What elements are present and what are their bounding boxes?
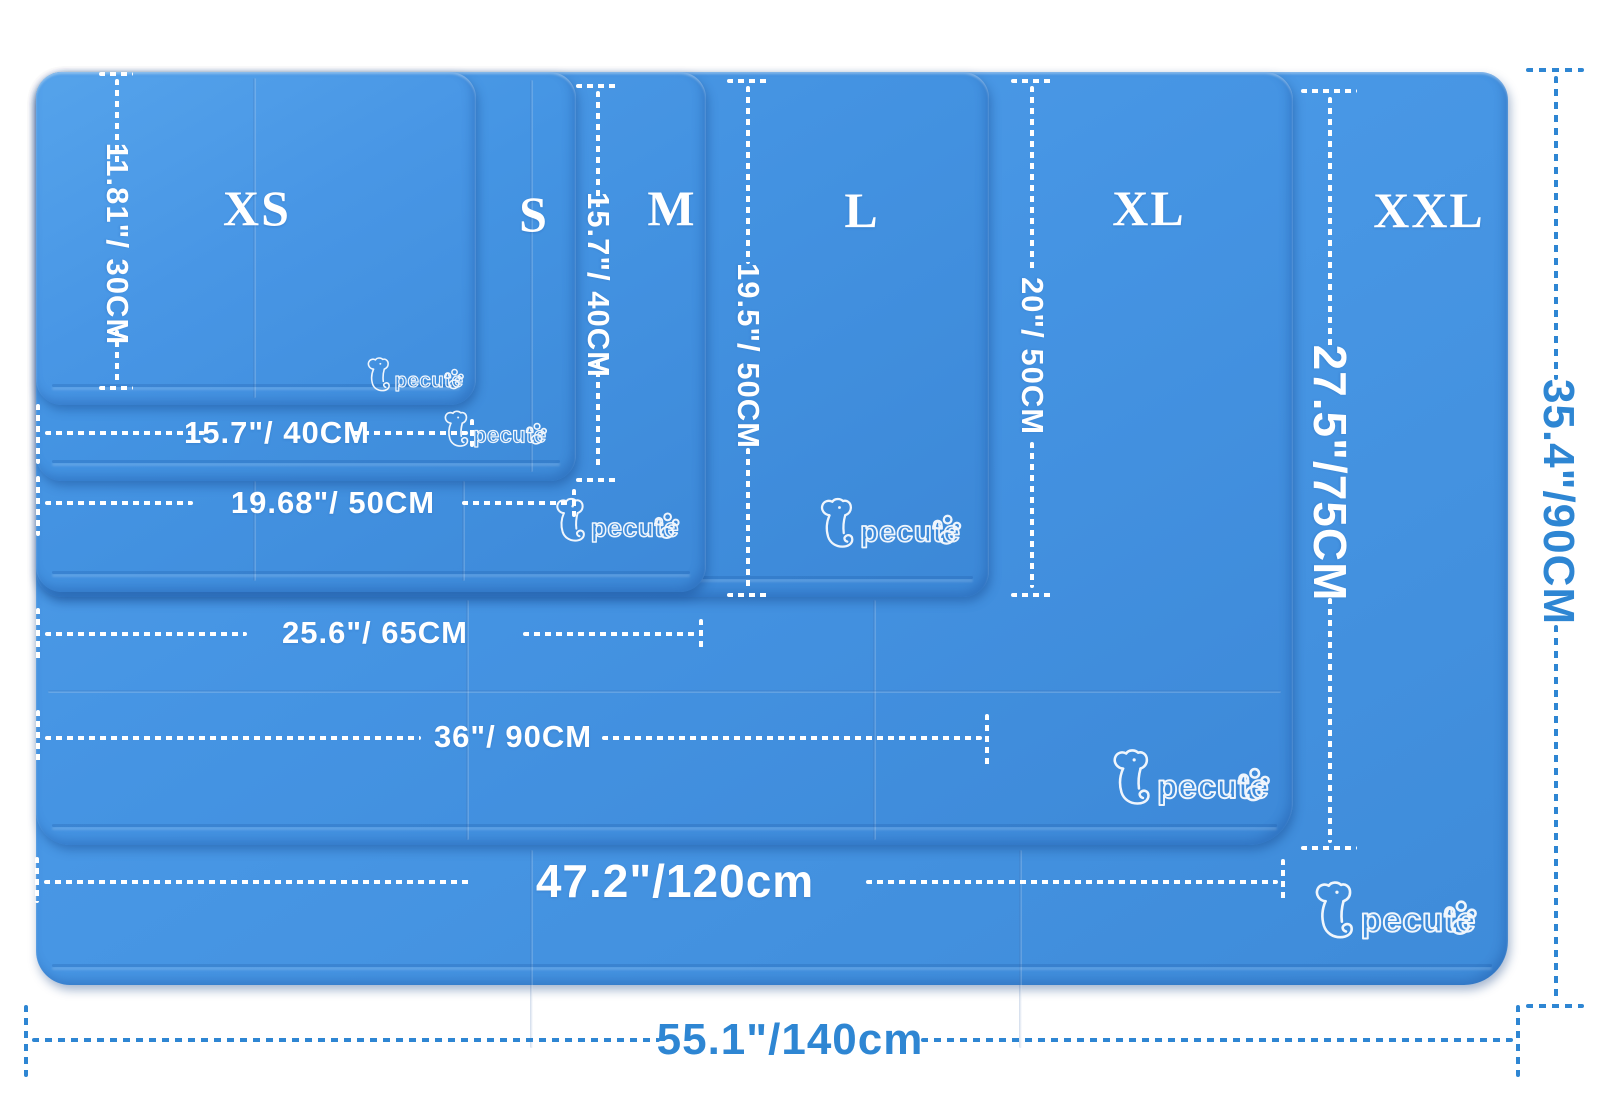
dim-xl-height-line	[1328, 598, 1332, 843]
dim-s-height-top-tick	[576, 84, 618, 88]
mat-panel-crease	[253, 78, 256, 398]
dim-s-width-end-tick	[572, 489, 576, 517]
mat-panel-crease	[462, 481, 465, 581]
dim-xs-width-end-tick	[470, 419, 474, 447]
dim-s-height-text: 15.7"/ 40CM	[580, 192, 616, 378]
dim-xxl-height-text: 35.4"/90CM	[1533, 379, 1583, 625]
pecute-logo-xxl	[1310, 879, 1480, 948]
dim-xs-height-text: 11.81"/ 30CM	[99, 143, 135, 345]
dim-m-height-line	[746, 448, 750, 588]
pecute-logo-xs	[364, 356, 466, 397]
dim-xxl-width-end-cap	[1516, 1005, 1520, 1077]
size-label-xl: XL	[1112, 179, 1185, 237]
dim-l-width-line	[45, 736, 421, 740]
size-label-xs: XS	[223, 179, 291, 237]
dim-xl-width-text: 47.2"/120cm	[536, 854, 814, 908]
dim-s-width-line	[462, 501, 568, 505]
dim-m-width-start-cap	[36, 608, 40, 660]
dim-xs-width-line	[352, 431, 468, 435]
dim-s-height-bottom-tick	[576, 478, 618, 482]
dim-xs-height-top-tick	[99, 72, 133, 76]
dim-s-width-start-cap	[36, 476, 40, 536]
dim-l-height-text: 20"/ 50CM	[1014, 277, 1050, 435]
dim-xxl-width-line	[32, 1038, 660, 1042]
dim-xl-width-line	[44, 880, 470, 884]
size-label-l: L	[844, 181, 879, 239]
mat-panel-crease	[48, 690, 1281, 693]
dim-m-width-end-tick	[699, 619, 703, 648]
dim-xxl-height-line	[1554, 625, 1558, 1001]
dim-xl-width-line	[866, 880, 1278, 884]
dim-xs-width-line	[45, 431, 205, 435]
dim-l-height-bottom-tick	[1011, 593, 1053, 597]
dim-xs-height-line	[115, 330, 119, 383]
dim-xxl-height-bottom-cap	[1526, 1004, 1584, 1008]
dim-m-width-line	[45, 632, 247, 636]
dim-m-height-bottom-tick	[727, 593, 769, 597]
dim-xxl-width-line	[921, 1038, 1513, 1042]
dim-m-width-text: 25.6"/ 65CM	[282, 615, 468, 651]
dim-xl-height-text: 27.5"/75CM	[1303, 345, 1357, 602]
size-label-s: S	[519, 185, 549, 243]
dim-l-width-text: 36"/ 90CM	[434, 719, 592, 755]
pecute-logo-l	[816, 496, 964, 556]
mat-panel-crease	[530, 850, 533, 1048]
dim-l-width-end-tick	[985, 714, 989, 766]
dim-l-width-start-cap	[36, 710, 40, 765]
dim-xs-width-start-cap	[36, 404, 40, 464]
dim-m-height-top-tick	[727, 79, 769, 83]
dim-xl-height-bottom-tick	[1301, 846, 1357, 850]
dim-l-height-line	[1030, 86, 1034, 270]
size-label-xxl: XXL	[1373, 181, 1485, 239]
dim-m-height-text: 19.5"/ 50CM	[730, 263, 766, 449]
dim-s-width-line	[45, 501, 193, 505]
dim-m-width-line	[523, 632, 695, 636]
dim-l-height-top-tick	[1011, 79, 1053, 83]
dim-xxl-width-start-cap	[24, 1005, 28, 1077]
dim-xs-height-bottom-tick	[99, 386, 133, 390]
dim-xxl-width-text: 55.1"/140cm	[657, 1015, 924, 1065]
size-label-m: M	[647, 179, 696, 237]
dim-l-height-line	[1030, 442, 1034, 588]
dim-xl-width-start-cap	[35, 857, 39, 903]
dim-s-height-line	[596, 360, 600, 470]
dim-xs-width-text: 15.7"/ 40CM	[184, 415, 370, 451]
dim-xl-height-top-tick	[1301, 89, 1357, 93]
dim-m-height-line	[746, 86, 750, 264]
dim-xl-height-line	[1328, 97, 1332, 350]
dim-xxl-height-line	[1554, 76, 1558, 380]
dim-xl-width-end-tick	[1281, 859, 1285, 903]
pecute-logo-xl	[1108, 747, 1273, 814]
dim-xxl-height-top-cap	[1526, 68, 1584, 72]
dim-l-width-line	[602, 736, 982, 740]
dim-s-width-text: 19.68"/ 50CM	[231, 485, 435, 521]
size-chart-canvas: XS S M L XL XXL 15.7"/ 40CM 19.68"/ 50CM…	[0, 0, 1600, 1100]
mat-panel-crease	[873, 600, 876, 840]
